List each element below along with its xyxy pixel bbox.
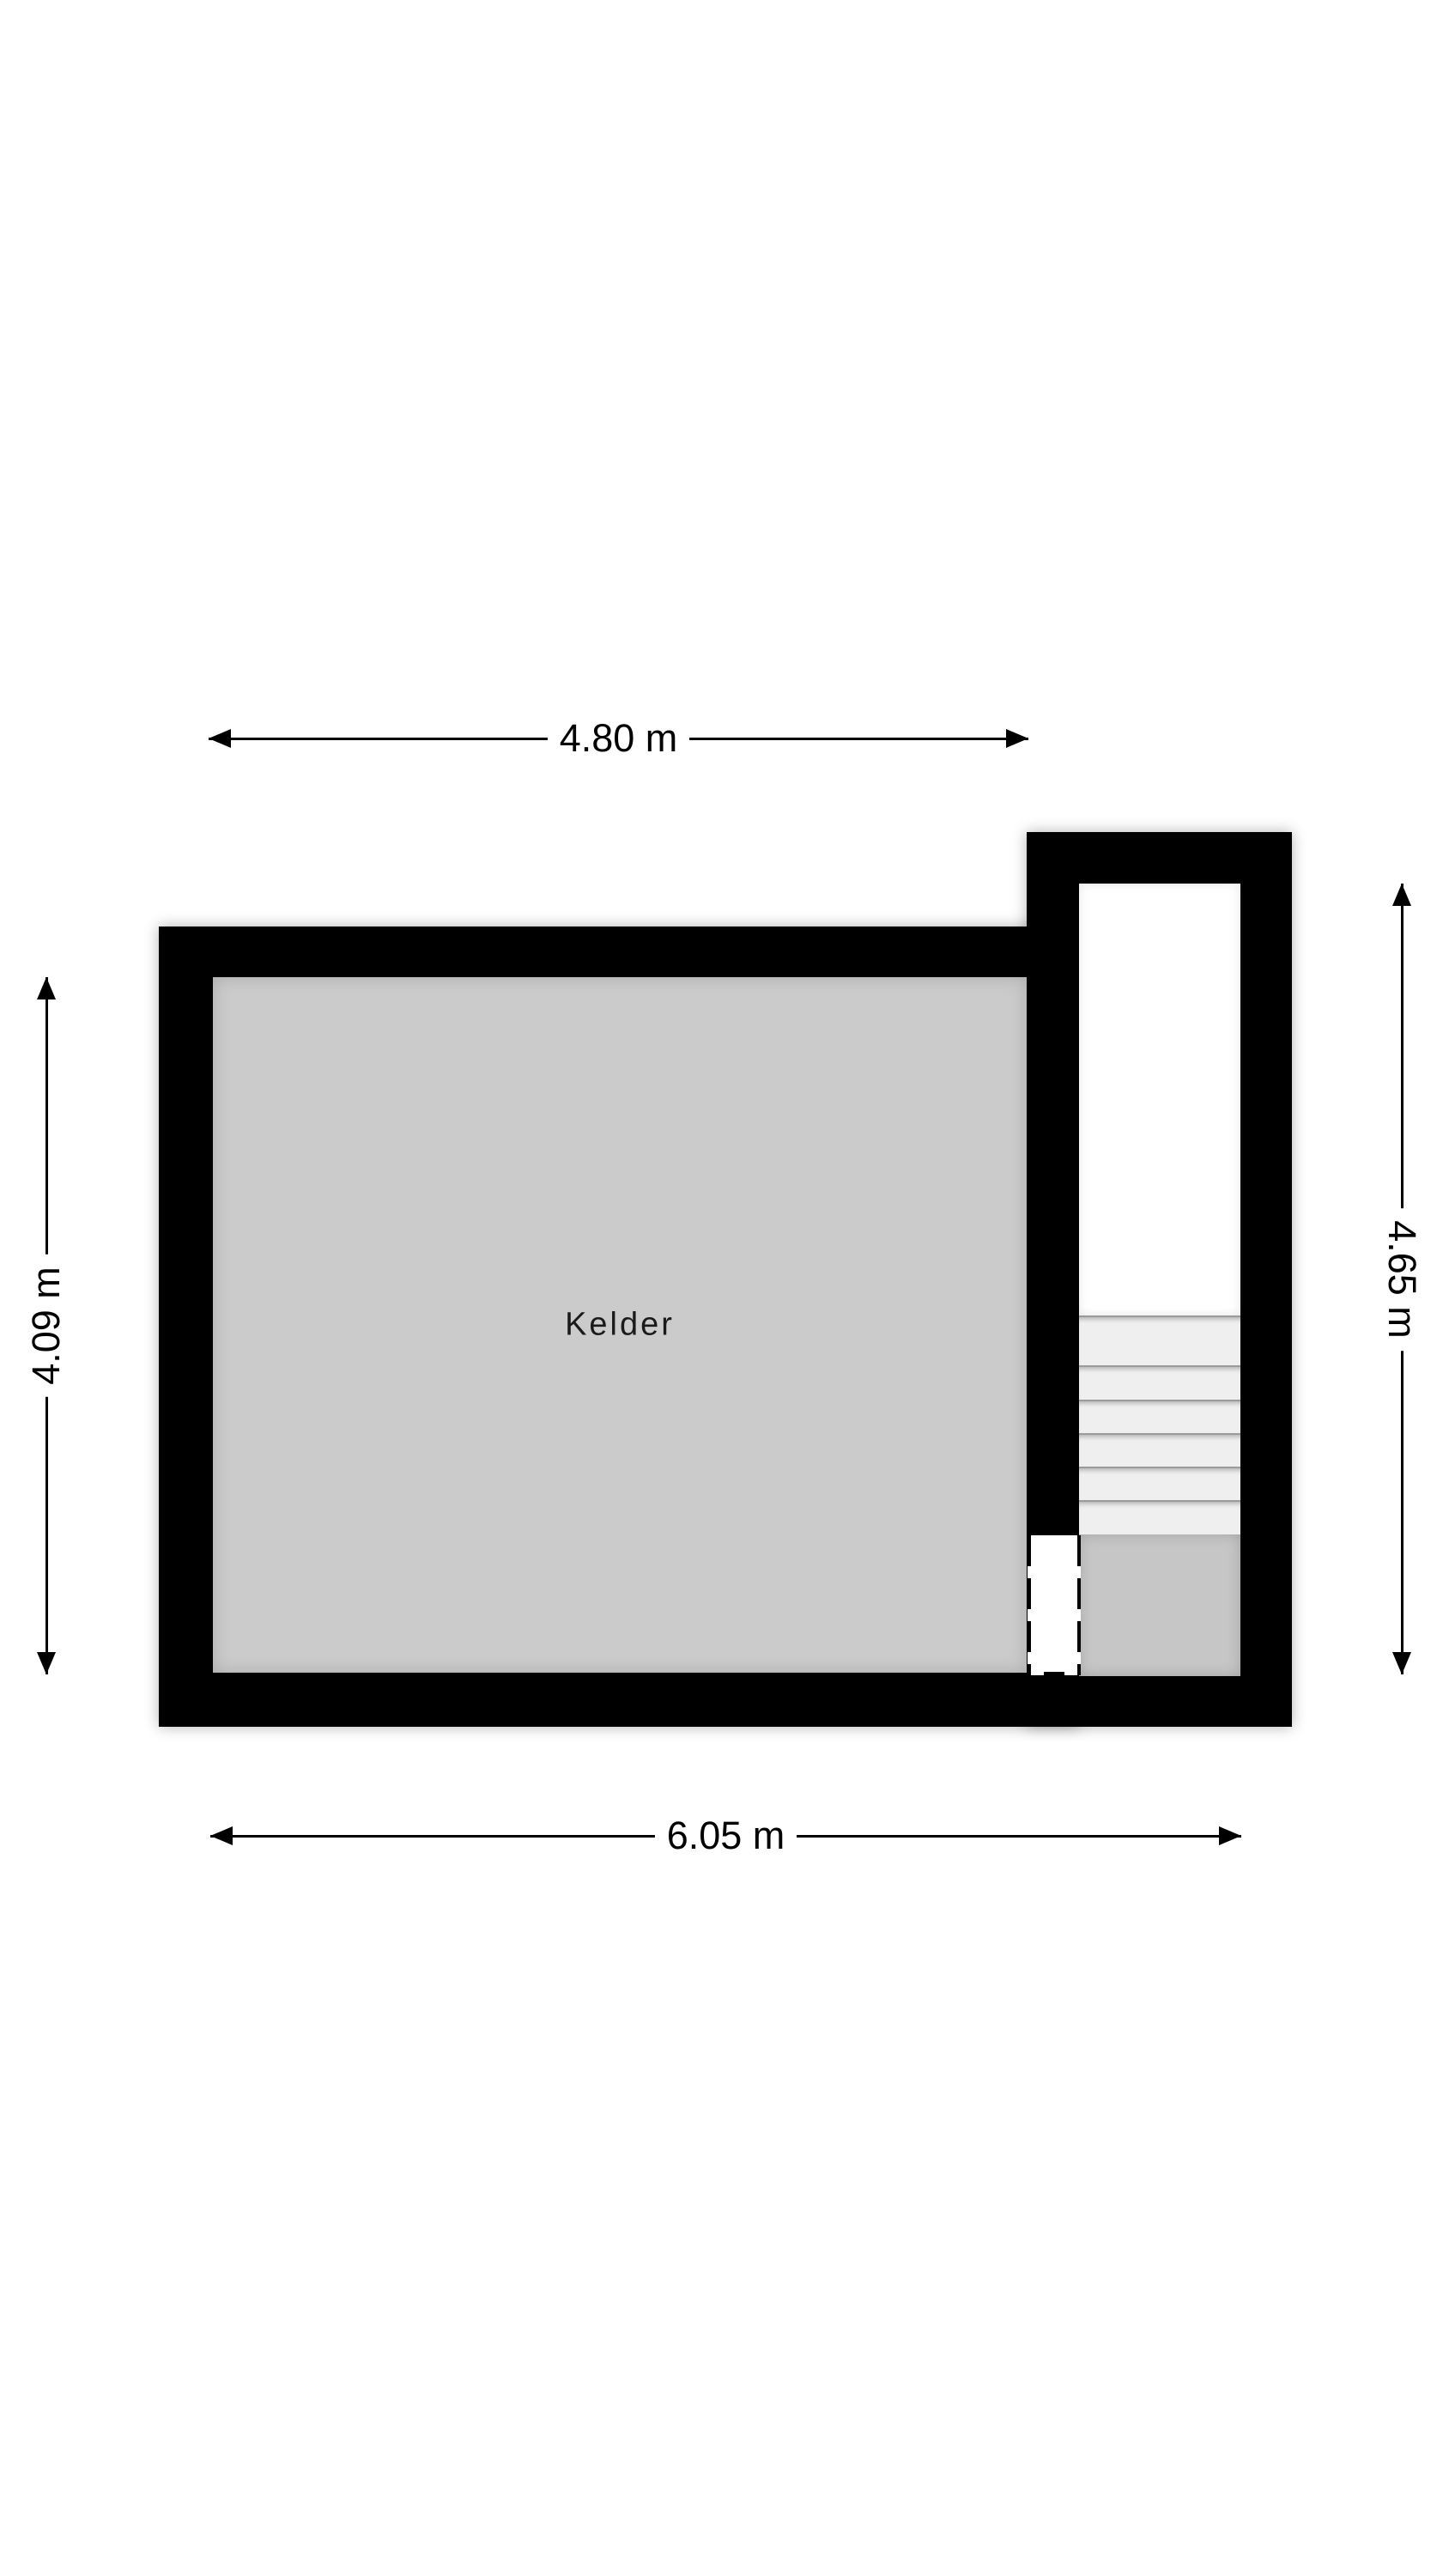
stair-tread [1079, 1315, 1240, 1365]
stairwell-void [1079, 884, 1240, 1315]
staircase-landing [1079, 1534, 1240, 1676]
dimension-label-left: 4.09 m [22, 1255, 70, 1397]
arrowhead-right-icon [1219, 1826, 1241, 1845]
dimension-left: 4.09 m [21, 977, 72, 1674]
door-dashed-edge-left [1028, 1535, 1031, 1675]
dimension-bottom: 6.05 m [210, 1810, 1241, 1862]
stair-tread [1079, 1365, 1240, 1400]
stair-tread [1079, 1433, 1240, 1467]
arrowhead-left-icon [209, 729, 231, 748]
door-opening [1028, 1535, 1081, 1675]
floor-plan: Kelder [159, 832, 1292, 1727]
stair-tread [1079, 1467, 1240, 1500]
arrowhead-right-icon [1006, 729, 1028, 748]
arrowhead-down-icon [37, 1652, 56, 1674]
dimension-right: 4.65 m [1376, 884, 1428, 1674]
stairwell [1079, 884, 1240, 1676]
arrowhead-down-icon [1392, 1652, 1411, 1674]
arrowhead-left-icon [210, 1826, 233, 1845]
door-dashed-edge-right [1077, 1535, 1081, 1675]
dimension-top: 4.80 m [209, 713, 1028, 764]
stair-tread [1079, 1400, 1240, 1433]
arrowhead-up-icon [37, 977, 56, 999]
room-label: Kelder [565, 1307, 675, 1344]
arrowhead-up-icon [1392, 884, 1411, 906]
dimension-label-top: 4.80 m [548, 714, 690, 762]
dimension-label-bottom: 6.05 m [655, 1812, 797, 1860]
dimension-label-right: 4.65 m [1378, 1208, 1426, 1351]
staircase-steps [1079, 1315, 1240, 1534]
door-dashed-edge-bottom [1028, 1672, 1081, 1675]
stair-tread [1079, 1500, 1240, 1534]
